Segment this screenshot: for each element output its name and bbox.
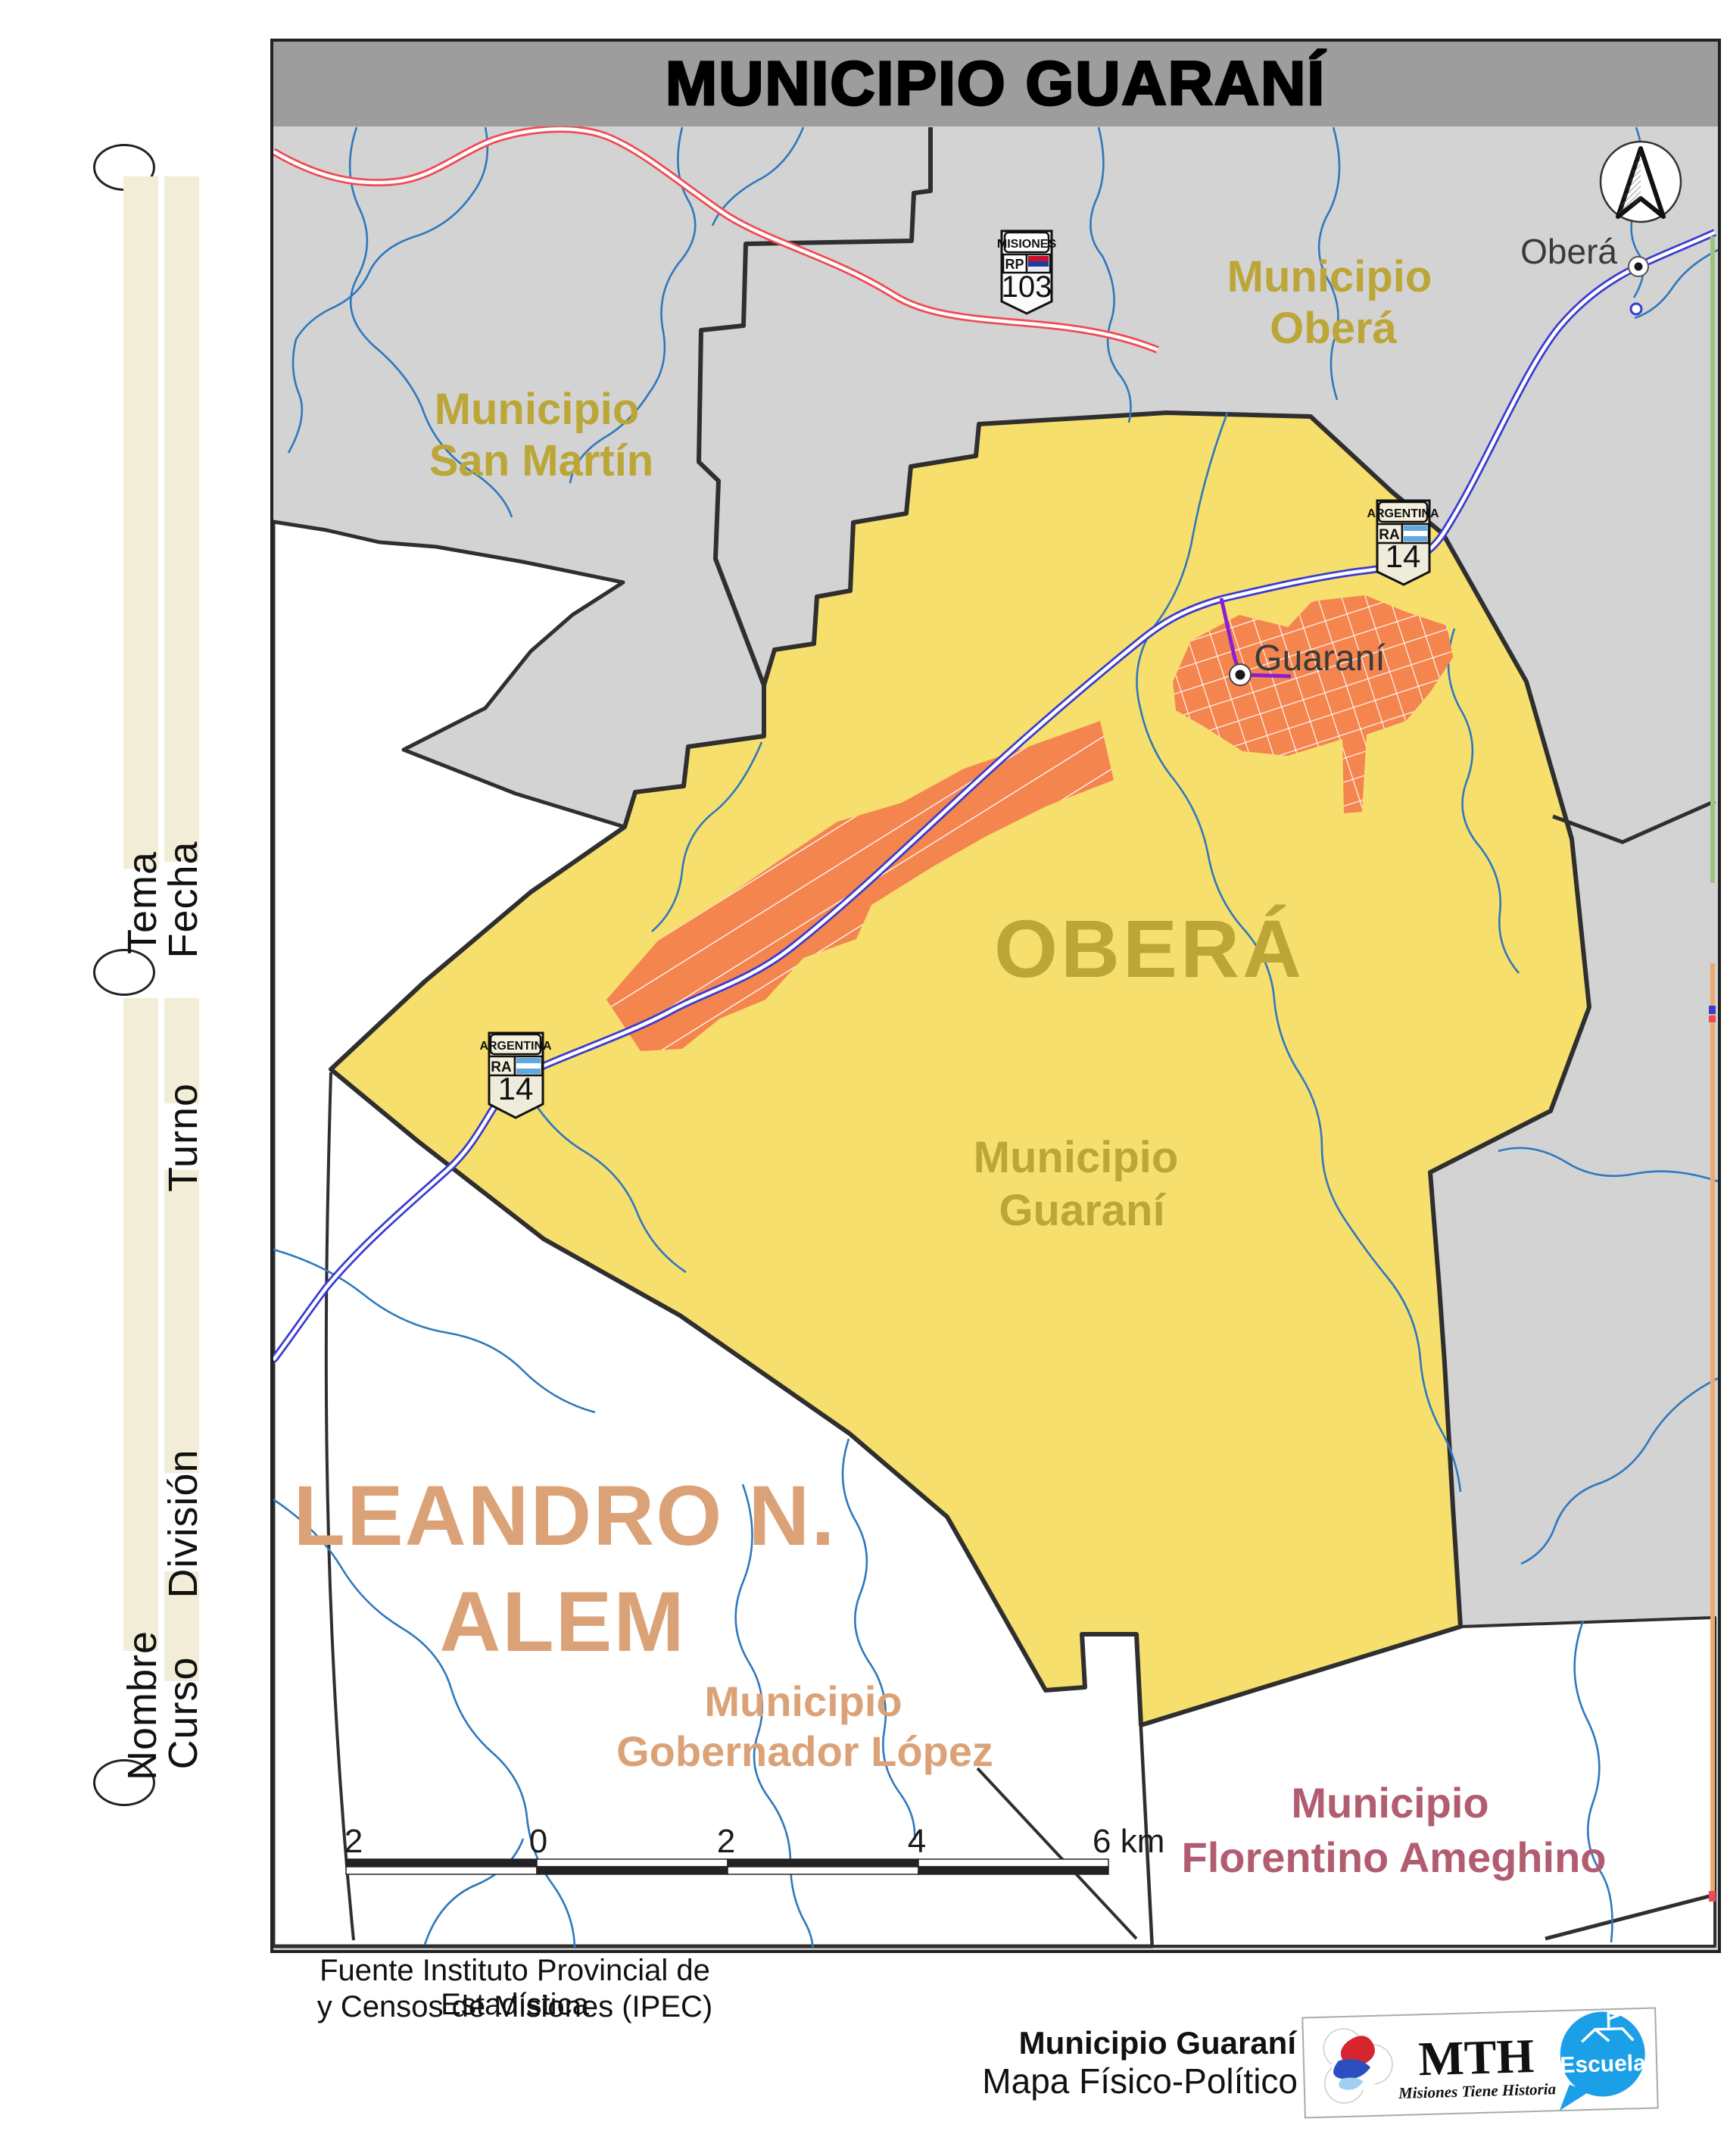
- map-title-bar: MUNICIPIO GUARANÍ: [273, 42, 1718, 126]
- shield-country: ARGENTINA: [479, 1040, 552, 1053]
- footer-credits: Municipio Guaraní Mapa Físico-Político M…: [977, 1999, 1681, 2128]
- label-city-obera: Oberá: [1520, 232, 1617, 271]
- source-note-line2: y Censos de Misiones (IPEC): [273, 1990, 757, 2024]
- city-marker-guarani: [1230, 664, 1251, 685]
- label-gob-lopez-1: Municipio: [704, 1677, 902, 1725]
- city-marker-obera: [1629, 257, 1648, 276]
- credit-subtitle: Mapa Físico-Político: [982, 2061, 1298, 2101]
- shield-number: 103: [1002, 270, 1052, 304]
- label-obera-mun-2: Oberá: [1270, 304, 1397, 353]
- label-obera-dept: OBERÁ: [994, 903, 1305, 994]
- write-line-nombre: [123, 998, 158, 1651]
- mth-wordmark: MTH: [1417, 2029, 1535, 2086]
- scale-tick: 2: [344, 1823, 363, 1860]
- write-line-tema: [123, 176, 158, 869]
- label-city-guarani: Guaraní: [1254, 638, 1386, 679]
- scale-tick: 6 km: [1093, 1823, 1164, 1860]
- label-obera-mun-1: Municipio: [1227, 252, 1432, 301]
- credit-title: Municipio Guaraní: [1019, 2025, 1298, 2061]
- route-shield-ra14-sw: ARGENTINA RA 14: [479, 1033, 552, 1118]
- label-florentino-1: Municipio: [1291, 1779, 1489, 1827]
- shield-prefix: RP: [1005, 257, 1024, 272]
- label-san-martin-2: San Martín: [429, 436, 654, 485]
- label-alem-1: LEANDRO N.: [294, 1468, 837, 1563]
- route-shield-ra14-ne: ARGENTINA RA 14: [1367, 501, 1439, 585]
- field-label-curso: Curso: [160, 1656, 207, 1769]
- north-arrow-icon: [1601, 142, 1681, 222]
- field-label-turno: Turno: [160, 1083, 207, 1192]
- label-gob-lopez-2: Gobernador López: [616, 1727, 993, 1775]
- label-san-martin-1: Municipio: [435, 385, 640, 434]
- map-title: MUNICIPIO GUARANÍ: [666, 48, 1326, 120]
- mth-logo-card: MTH Misiones Tiene Historia Escuela: [1302, 2008, 1658, 2118]
- hole-punch-middle: [93, 949, 155, 996]
- shield-region: MISIONES: [997, 238, 1057, 251]
- scale-tick: 2: [717, 1823, 735, 1860]
- map-frame: MUNICIPIO GUARANÍ: [270, 39, 1721, 1953]
- shield-number: 14: [498, 1071, 534, 1106]
- write-line-division: [164, 1170, 199, 1473]
- field-label-tema: Tema: [119, 851, 166, 954]
- boundary-east-gray: [1553, 801, 1715, 842]
- label-guarani-mun-2: Guaraní: [999, 1186, 1166, 1235]
- field-label-fecha: Fecha: [160, 841, 207, 958]
- write-line-fecha: [164, 176, 199, 862]
- map-canvas: MISIONES RP 103 ARGENTINA RA 14 ARGENTIN…: [273, 126, 1718, 1949]
- field-label-division: División: [160, 1449, 207, 1598]
- shield-number: 14: [1386, 538, 1421, 574]
- escuela-label: Escuela: [1560, 2051, 1647, 2078]
- scale-tick: 4: [908, 1823, 926, 1860]
- scale-tick: 0: [529, 1823, 547, 1860]
- field-label-nombre: Nombre: [119, 1630, 166, 1780]
- label-guarani-mun-1: Municipio: [974, 1133, 1179, 1182]
- route-shield-rp103: MISIONES RP 103: [997, 231, 1057, 314]
- route-node: [1631, 304, 1641, 314]
- shield-country: ARGENTINA: [1367, 507, 1439, 520]
- label-florentino-2: Florentino Ameghino: [1182, 1833, 1607, 1881]
- label-alem-2: ALEM: [439, 1574, 685, 1669]
